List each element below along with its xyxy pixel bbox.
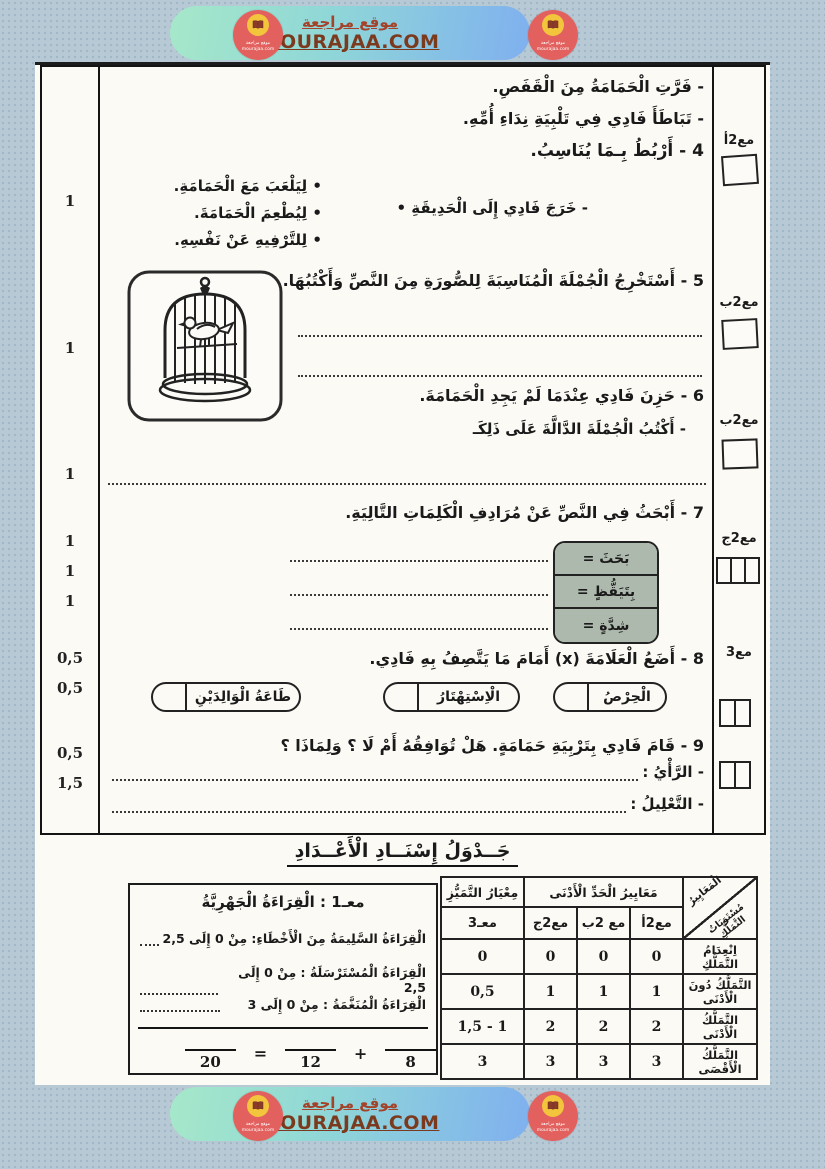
mark-cell [555, 684, 589, 710]
fraction-bar [385, 1037, 436, 1051]
reading-line-1: الْقِرَاءَةُ السَّلِيمَةُ مِنَ الْأَخْطَ… [130, 931, 436, 946]
score-value: 1 [42, 532, 98, 550]
logo-text-url: mourajaa.com [242, 1128, 274, 1133]
cell-value: 3 [577, 1044, 630, 1079]
col-header: مع2ج [524, 907, 577, 939]
grading-title: جَــدْوَلُ إِسْنَــادِ الْأَعْــدَادِ [287, 840, 519, 867]
intro-line-1: - فَرَّتِ الْحَمَامَةُ مِنَ الْقَفَصِ. [492, 77, 704, 96]
cell-value: 1 [630, 974, 683, 1009]
trait-pill-istihtar: الْاِسْتِهْتَارُ [383, 682, 520, 712]
q4-option: • لِلتَّرْفِيهِ عَنْ نَفْسِهِ. [174, 227, 322, 254]
cell-value: 0 [577, 939, 630, 974]
cell-value: 1 [524, 974, 577, 1009]
criterion-box [721, 318, 759, 350]
diag-criteria-label: الْمَعَايِيرُ [685, 874, 723, 908]
question-6-title: 6 - حَزِنَ فَادِي عِنْدَمَا لَمْ يَجِدِ … [419, 386, 704, 405]
row-label: التَّمَلُّكُ الْأَقْصَى [683, 1044, 757, 1079]
plus-sign: + [354, 1037, 367, 1063]
site-url: MOURAJAA.COM [261, 31, 440, 53]
question-7-title: 7 - أَبْحَثُ فِي النَّصِّ عَنْ مُرَادِفِ… [345, 503, 704, 522]
mark-cell [153, 684, 187, 710]
exercise-content: - فَرَّتِ الْحَمَامَةُ مِنَ الْقَفَصِ. -… [102, 67, 712, 833]
cell-value: 2 [630, 1009, 683, 1044]
fill-dots [140, 936, 159, 946]
total-score-formula: 20 = 12 + 8 [130, 1037, 436, 1071]
fraction-left: 12 [285, 1037, 336, 1071]
reading-line-2-text: الْقِرَاءَةُ الْمُسْتَرْسَلَةُ : مِنْ 0 … [218, 965, 426, 995]
row-label: التَّمَلُّكُ دُونَ الْأَدْنَى [683, 974, 757, 1009]
grading-title-wrap: جَــدْوَلُ إِسْنَــادِ الْأَعْــدَادِ [35, 840, 770, 867]
answer-line-q5-1 [298, 329, 702, 337]
book-icon [247, 1095, 269, 1117]
criterion-cell [734, 761, 751, 789]
q9-justification-label: - التَّعْلِيلُ : [630, 795, 704, 813]
logo-text-url: mourajaa.com [537, 1128, 569, 1133]
question-8-title: 8 - أَضَعُ الْعَلَامَةَ (x) أَمَامَ مَا … [369, 649, 704, 668]
reading-line-1-text: الْقِرَاءَةُ السَّلِيمَةُ مِنَ الْأَخْطَ… [163, 931, 426, 946]
criterion-cells-3 [716, 557, 760, 584]
answer-line-q7-1 [290, 554, 548, 562]
q9-opinion-row: - الرَّأْيُ : [108, 763, 704, 781]
site-logo-right: موقع مراجعة mourajaa.com [528, 1091, 578, 1141]
col-header: مع 2ب [577, 907, 630, 939]
logo-text-ar: موقع مراجعة [246, 1122, 270, 1127]
q9-opinion-label: - الرَّأْيُ : [642, 763, 704, 781]
scanned-worksheet-page: موقع مراجعة MOURAJAA.COM موقع مراجعة mou… [0, 0, 825, 1169]
cell-value: 1 [577, 974, 630, 1009]
score-value: 1 [42, 339, 98, 357]
book-icon [542, 14, 564, 36]
reading-line-2: الْقِرَاءَةُ الْمُسْتَرْسَلَةُ : مِنْ 0 … [130, 965, 436, 995]
score-value: 0,5 [42, 649, 98, 667]
synonym-words-box: بَحَثَ = بِتَيَقُّظٍ = شِدَّةٍ = [553, 541, 659, 644]
logo-text-ar: موقع مراجعة [541, 41, 565, 46]
book-icon [247, 14, 269, 36]
site-logo-left: موقع مراجعة mourajaa.com [233, 1091, 283, 1141]
site-banner-bottom: موقع مراجعة MOURAJAA.COM موقع مراجعة mou… [0, 1081, 825, 1143]
site-logo-left: موقع مراجعة mourajaa.com [233, 10, 283, 60]
fraction-denominator: 12 [285, 1053, 336, 1071]
row-label: التَّمَلُّكُ الْأَدْنَى [683, 1009, 757, 1044]
birdcage-illustration [125, 268, 285, 428]
cell-value: 0 [441, 939, 524, 974]
q4-option: • لِيُطْعِمَ الْحَمَامَةَ. [174, 200, 322, 227]
min-criteria-header: مَعَايِيرُ الْحَدِّ الْأَدْنَى [524, 877, 683, 907]
fraction-bar [285, 1037, 336, 1051]
oral-reading-box: معـ1 : الْقِرَاءَةُ الْجَهْرِيَّةُ الْقِ… [128, 883, 438, 1075]
criterion-cell [744, 557, 760, 584]
cell-value: 2 [524, 1009, 577, 1044]
divider-line [138, 1027, 428, 1029]
cell-value: 0,5 [441, 974, 524, 1009]
synonym-word: بِتَيَقُّظٍ = [555, 576, 657, 609]
question-4-title: 4 - أَرْبُطُ بِـمَا يُنَاسِبُ. [530, 141, 704, 161]
fraction-denominator: 20 [185, 1053, 236, 1071]
site-banner-top: موقع مراجعة MOURAJAA.COM موقع مراجعة mou… [0, 0, 825, 62]
question-6-subtitle: - أَكْتُبُ الْجُمْلَةَ الدَّالَّةَ عَلَى… [473, 420, 686, 438]
col-header: مع2أ [630, 907, 683, 939]
question-4-right-item: - خَرَجَ فَادِي إِلَى الْحَدِيقَةِ • [397, 199, 589, 217]
criterion-label-q4: مع2أ [714, 133, 764, 148]
grading-table: الْمَعَايِيرُ مُسْتَوَيَاتُ التَّمَلُّكِ… [440, 876, 758, 1080]
mark-cell [385, 684, 419, 710]
criterion-label-q7: مع2ج [714, 531, 764, 546]
answer-line-q6 [108, 477, 706, 485]
trait-pill-taa: طَاعَةُ الْوَالِدَيْنِ [151, 682, 301, 712]
score-value: 0,5 [42, 679, 98, 697]
cell-value: 0 [524, 939, 577, 974]
trait-label: الْحِرْصُ [589, 684, 665, 710]
fraction-total: 20 [185, 1037, 236, 1071]
criterion-cells-2b [719, 761, 751, 789]
criterion-label-q5: مع2ب [714, 295, 764, 310]
q4-option: • لِيَلْعَبَ مَعَ الْحَمَامَةِ. [174, 173, 322, 200]
intro-line-2: - تَبَاطَأَ فَادِي فِي تَلْبِيَةِ نِدَاء… [463, 109, 704, 128]
cell-value: 0 [630, 939, 683, 974]
table-row: التَّمَلُّكُ دُونَ الْأَدْنَى 1 1 1 0,5 [441, 974, 757, 1009]
site-url: MOURAJAA.COM [261, 1112, 440, 1134]
trait-pill-hirs: الْحِرْصُ [553, 682, 667, 712]
q9-justification-row: - التَّعْلِيلُ : [108, 795, 704, 813]
birdcage-icon [125, 268, 285, 424]
logo-text-url: mourajaa.com [242, 47, 274, 52]
equals-sign: = [254, 1037, 267, 1063]
trait-label: طَاعَةُ الْوَالِدَيْنِ [187, 684, 299, 710]
answer-line-q7-3 [290, 622, 548, 630]
score-value: 1 [42, 562, 98, 580]
criterion-label-q6: مع2ب [714, 413, 764, 428]
criterion-cells-2a [719, 699, 751, 727]
excellence-header: مِعْيَارُ التَّمَيُّزِ [441, 877, 524, 907]
score-column: 1 1 1 1 1 1 0,5 0,5 0,5 1,5 [42, 67, 100, 833]
reading-header: معـ1 : الْقِرَاءَةُ الْجَهْرِيَّةُ [130, 893, 436, 911]
site-name-arabic: موقع مراجعة [302, 1094, 398, 1112]
score-value: 1 [42, 592, 98, 610]
score-value: 1,5 [42, 774, 98, 792]
fill-dots [140, 1002, 220, 1012]
table-row: التَّمَلُّكُ الْأَقْصَى 3 3 3 3 [441, 1044, 757, 1079]
cell-value: 3 [630, 1044, 683, 1079]
site-name-arabic: موقع مراجعة [302, 13, 398, 31]
worksheet-paper: 1 1 1 1 1 1 0,5 0,5 0,5 1,5 - فَرَّتِ ال… [35, 62, 770, 1085]
diagonal-header-cell: الْمَعَايِيرُ مُسْتَوَيَاتُ التَّمَلُّكِ [683, 877, 757, 939]
cell-value: 3 [524, 1044, 577, 1079]
logo-text-ar: موقع مراجعة [246, 41, 270, 46]
trait-label: الْاِسْتِهْتَارُ [419, 684, 518, 710]
answer-line-q9-1 [112, 768, 638, 781]
fraction-denominator: 8 [385, 1053, 436, 1071]
fraction-right: 8 [385, 1037, 436, 1071]
site-logo-right: موقع مراجعة mourajaa.com [528, 10, 578, 60]
question-4-options: • لِيَلْعَبَ مَعَ الْحَمَامَةِ. • لِيُطْ… [174, 173, 322, 254]
fill-dots [140, 985, 218, 995]
col-header: معـ3 [441, 907, 524, 939]
criterion-label-q8: مع3 [714, 645, 764, 660]
answer-line-q9-2 [112, 800, 626, 813]
reading-line-3-text: الْقِرَاءَةُ الْمُنَغَّمَةُ : مِنْ 0 إِل… [248, 997, 426, 1012]
score-value: 1 [42, 465, 98, 483]
exercise-frame: 1 1 1 1 1 1 0,5 0,5 0,5 1,5 - فَرَّتِ ال… [40, 65, 766, 835]
answer-line-q7-2 [290, 588, 548, 596]
cell-value: 3 [441, 1044, 524, 1079]
answer-line-q5-2 [298, 369, 702, 377]
criterion-box [721, 154, 759, 186]
criterion-cell [734, 699, 751, 727]
question-9-title: 9 - قَامَ فَادِي بِتَرْبِيَةِ حَمَامَةٍ.… [280, 736, 704, 755]
site-banner-pill: موقع مراجعة MOURAJAA.COM [170, 1087, 530, 1141]
synonym-word: بَحَثَ = [555, 543, 657, 576]
question-5-title: 5 - أَسْتَخْرِجُ الْجُمْلَةَ الْمُنَاسِب… [283, 271, 704, 290]
logo-text-url: mourajaa.com [537, 47, 569, 52]
criterion-box [721, 438, 758, 469]
synonym-word: شِدَّةٍ = [555, 609, 657, 642]
score-value: 1 [42, 192, 98, 210]
table-row: التَّمَلُّكُ الْأَدْنَى 2 2 2 1,5 - 1 [441, 1009, 757, 1044]
book-icon [542, 1095, 564, 1117]
score-value: 0,5 [42, 744, 98, 762]
logo-text-ar: موقع مراجعة [541, 1122, 565, 1127]
cell-value: 2 [577, 1009, 630, 1044]
reading-line-3: الْقِرَاءَةُ الْمُنَغَّمَةُ : مِنْ 0 إِل… [130, 997, 436, 1012]
cell-value: 1,5 - 1 [441, 1009, 524, 1044]
site-banner-pill: موقع مراجعة MOURAJAA.COM [170, 6, 530, 60]
criteria-margin: مع2أ مع2ب مع2ب مع2ج مع3 [712, 67, 764, 833]
fraction-bar [185, 1037, 236, 1051]
